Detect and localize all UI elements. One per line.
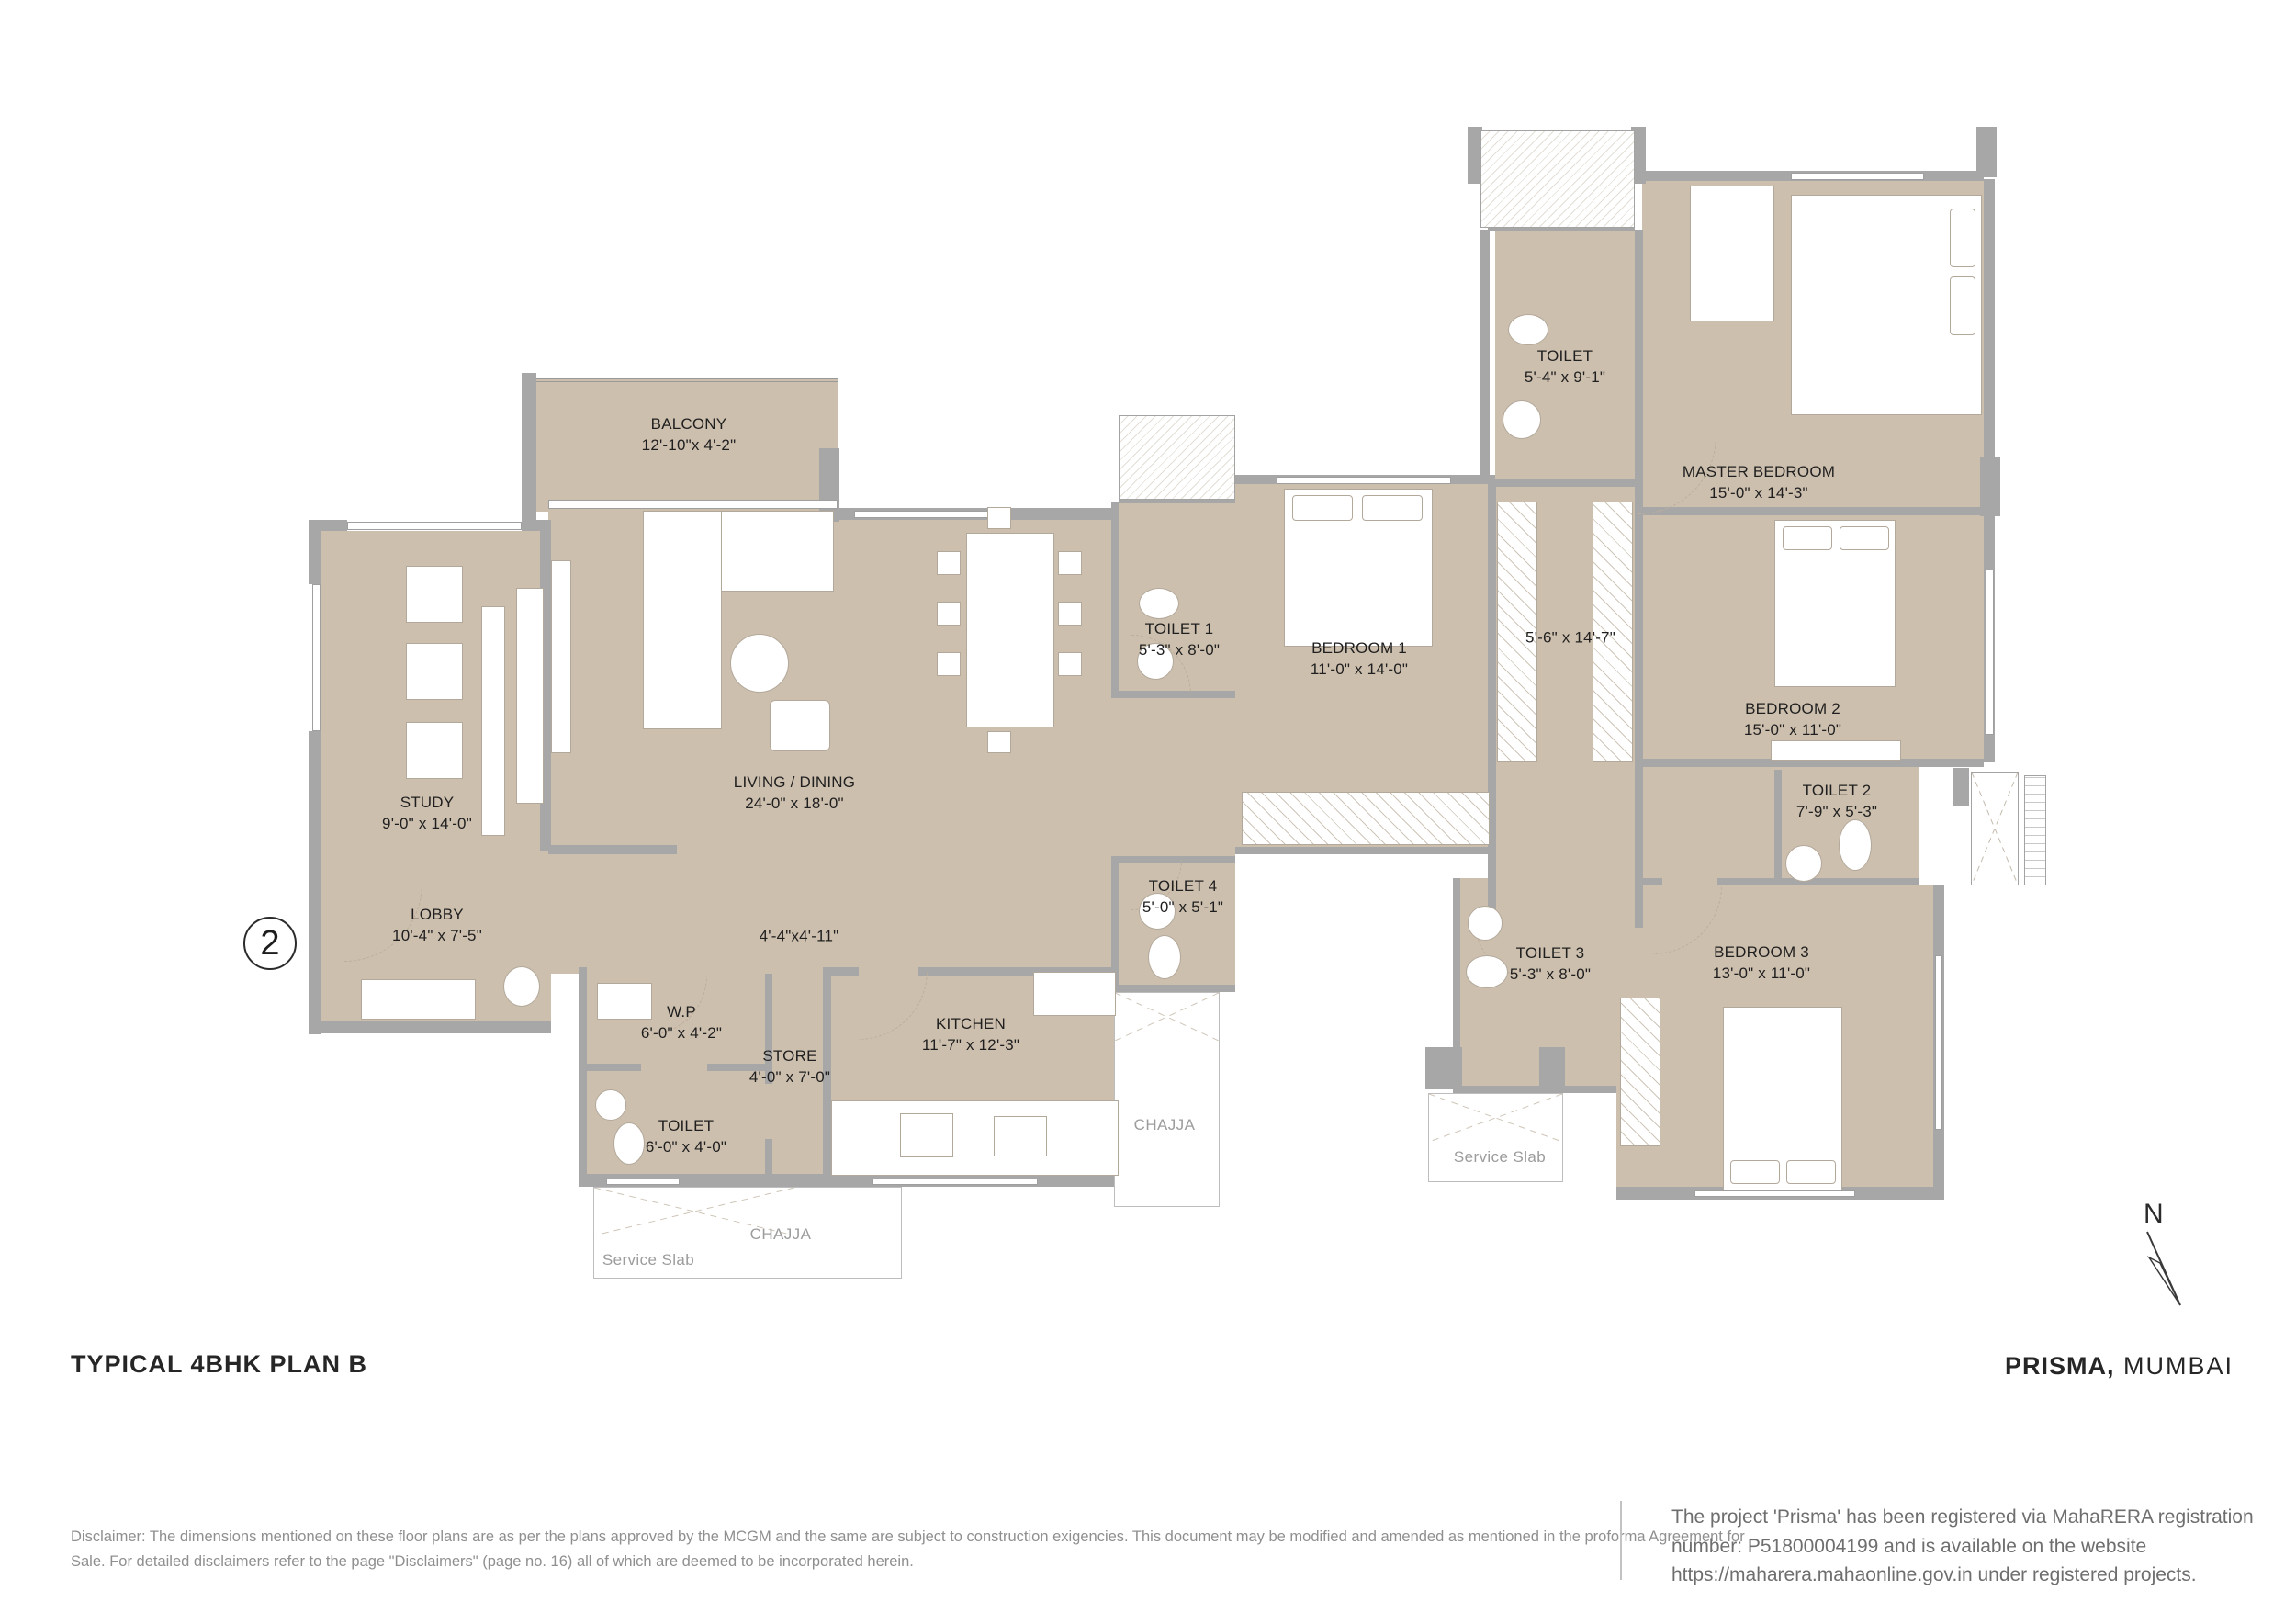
sink: [994, 1116, 1047, 1156]
passage-dim-label: 4'-4"x4'-11": [760, 927, 839, 948]
room-label-bedroom-2: BEDROOM 215'-0" x 11'-0": [1744, 699, 1841, 741]
project-brand: PRISMA,: [2005, 1352, 2115, 1380]
chajja-left-label: CHAJJA: [750, 1225, 812, 1244]
rera-line: The project 'Prisma' has been registered…: [1671, 1503, 2254, 1532]
cross-hatch-icon: [1429, 1094, 1562, 1142]
armchair: [770, 700, 830, 751]
chair: [937, 602, 961, 626]
window: [872, 1179, 1038, 1185]
room-corridor: [551, 854, 1119, 974]
wall-segment: [1642, 507, 1984, 515]
rera-registration-text: The project 'Prisma' has been registered…: [1671, 1503, 2254, 1590]
refrigerator: [1033, 972, 1116, 1016]
room-label-study: STUDY9'-0" x 14'-0": [382, 793, 472, 835]
wall-segment: [1976, 127, 1997, 177]
hob: [900, 1113, 953, 1157]
wall-segment: [309, 731, 321, 1034]
service-slab-right-box: [1428, 1093, 1563, 1182]
wall-segment: [548, 845, 677, 854]
chajja-mid-box: [1114, 992, 1220, 1207]
footer-divider: [1620, 1501, 1622, 1580]
north-indicator: N: [2131, 1199, 2213, 1318]
window: [548, 500, 838, 509]
wall-segment: [1774, 770, 1782, 878]
pillow: [1292, 495, 1353, 521]
tv-unit: [551, 560, 571, 753]
wash-basin: [1503, 400, 1541, 439]
room-label-master-bedroom: MASTER BEDROOM15'-0" x 14'-3": [1683, 462, 1835, 504]
console-table: [361, 979, 476, 1020]
unit-number: 2: [260, 924, 279, 964]
dining-table: [966, 533, 1054, 727]
sofa: [643, 511, 722, 729]
wall-segment: [1539, 1047, 1565, 1089]
disclaimer-line: Disclaimer: The dimensions mentioned on …: [71, 1525, 1745, 1550]
chair: [1058, 602, 1082, 626]
dresser: [1771, 740, 1901, 761]
room-label-toilet-ground: TOILET6'-0" x 4'-0": [646, 1116, 726, 1158]
wall-segment: [1425, 1047, 1462, 1089]
wash-basin: [1468, 906, 1503, 941]
pillow: [1840, 526, 1889, 550]
north-arrow-icon: [2138, 1228, 2202, 1320]
disclaimer-text: Disclaimer: The dimensions mentioned on …: [71, 1525, 1745, 1574]
room-label-toilet-3: TOILET 35'-3" x 8'-0": [1510, 943, 1591, 986]
wall-segment: [1953, 768, 1969, 806]
wall-segment: [320, 520, 347, 531]
passage-dim-label: 5'-6" x 14'-7": [1525, 628, 1615, 649]
rera-line: https://maharera.mahaonline.gov.in under…: [1671, 1561, 2254, 1590]
bed: [1774, 520, 1896, 687]
wall-segment: [1635, 230, 1643, 928]
chair: [1058, 551, 1082, 575]
duct-shaft: [1971, 772, 2019, 885]
service-slab-left-label: Service Slab: [602, 1251, 694, 1269]
plan-title: TYPICAL 4BHK PLAN B: [71, 1350, 367, 1379]
pillow: [1786, 1160, 1836, 1184]
toilet-fixture: [1466, 955, 1508, 988]
toilet-fixture: [613, 1122, 645, 1165]
stool: [503, 966, 540, 1007]
room-label-toilet-master: TOILET5'-4" x 9'-1": [1525, 346, 1605, 389]
study-seat: [406, 566, 463, 623]
wall-segment: [1119, 985, 1235, 992]
wall-segment: [1717, 878, 1919, 885]
pillow: [1730, 1160, 1780, 1184]
chair: [1058, 652, 1082, 676]
room-label-store: STORE4'-0" x 7'-0": [749, 1046, 830, 1088]
window: [312, 584, 321, 731]
service-ladder: [2024, 775, 2046, 885]
room-label-toilet-2: TOILET 27'-9" x 5'-3": [1796, 781, 1877, 823]
window: [1277, 477, 1451, 484]
chair: [937, 652, 961, 676]
chair: [937, 551, 961, 575]
window: [606, 1179, 680, 1185]
window: [347, 522, 522, 530]
wardrobe: [1690, 186, 1774, 321]
wall-segment: [586, 1064, 641, 1071]
pillow: [1950, 276, 1975, 335]
room-label-living-dining: LIVING / DINING24'-0" x 18'-0": [734, 773, 855, 815]
coffee-table: [730, 634, 789, 693]
study-seat: [406, 643, 463, 700]
toilet-fixture: [1839, 819, 1872, 871]
disclaimer-line: Sale. For detailed disclaimers refer to …: [71, 1550, 1745, 1574]
wall-segment: [1111, 502, 1119, 698]
room-label-toilet-1: TOILET 15'-3" x 8'-0": [1139, 619, 1220, 661]
room-label-kitchen: KITCHEN11'-7" x 12'-3": [922, 1014, 1019, 1056]
room-label-lobby: LOBBY10'-4" x 7'-5": [392, 905, 482, 947]
wash-basin: [595, 1089, 626, 1121]
wall-segment: [320, 1021, 551, 1033]
north-label: N: [2144, 1199, 2165, 1230]
project-city: MUMBAI: [2123, 1352, 2234, 1380]
service-slab-right-label: Service Slab: [1454, 1148, 1546, 1167]
study-seat: [406, 722, 463, 779]
wall-segment: [1453, 1086, 1616, 1093]
toilet-fixture: [1508, 314, 1548, 345]
window: [1694, 1190, 1855, 1197]
chair: [987, 731, 1011, 753]
wall-segment: [1480, 230, 1490, 482]
bed: [1723, 1007, 1842, 1190]
wall-segment: [831, 967, 859, 976]
kitchen-counter: [831, 1100, 1119, 1176]
wall-segment: [1495, 479, 1635, 487]
room-label-bedroom-1: BEDROOM 111'-0" x 14'-0": [1311, 638, 1408, 681]
window: [1986, 570, 1994, 735]
wall-segment: [1635, 878, 1662, 885]
study-desk: [481, 606, 505, 836]
study-shelf: [516, 588, 544, 804]
chajja-mid-label: CHAJJA: [1134, 1116, 1196, 1134]
bed: [1284, 489, 1433, 647]
chair: [987, 507, 1011, 529]
room-label-balcony: BALCONY12'-10"x 4'-2": [642, 414, 737, 457]
rera-line: number: P51800004199 and is available on…: [1671, 1532, 2254, 1562]
pillow: [1950, 209, 1975, 267]
cross-hatch-icon: [1972, 773, 2018, 885]
toilet-fixture: [1139, 588, 1179, 619]
pillow: [1362, 495, 1423, 521]
toilet-fixture: [1148, 935, 1181, 979]
room-label-wp: W.P6'-0" x 4'-2": [641, 1002, 722, 1044]
floorplan-page: BALCONY12'-10"x 4'-2" LIVING / DINING24'…: [0, 0, 2296, 1624]
bed: [1791, 195, 1982, 415]
room-label-toilet-4: TOILET 45'-0" x 5'-1": [1142, 876, 1223, 919]
cross-hatch-icon: [1115, 993, 1219, 1041]
window: [1935, 955, 1942, 1130]
wall-segment: [1235, 847, 1495, 854]
wall-segment: [1488, 482, 1496, 928]
duct-shaft: [1119, 415, 1235, 500]
wardrobe: [1620, 998, 1660, 1146]
lift-shaft: [1480, 130, 1635, 228]
room-label-bedroom-3: BEDROOM 313'-0" x 11'-0": [1713, 942, 1810, 985]
window: [854, 511, 992, 518]
wardrobe: [1242, 792, 1490, 845]
wash-basin: [1785, 845, 1822, 882]
pillow: [1783, 526, 1832, 550]
project-name: PRISMA, MUMBAI: [2005, 1352, 2234, 1381]
unit-number-badge: 2: [243, 917, 297, 970]
wall-segment: [579, 967, 587, 1187]
window: [1791, 173, 1924, 180]
wall-segment: [522, 373, 536, 522]
